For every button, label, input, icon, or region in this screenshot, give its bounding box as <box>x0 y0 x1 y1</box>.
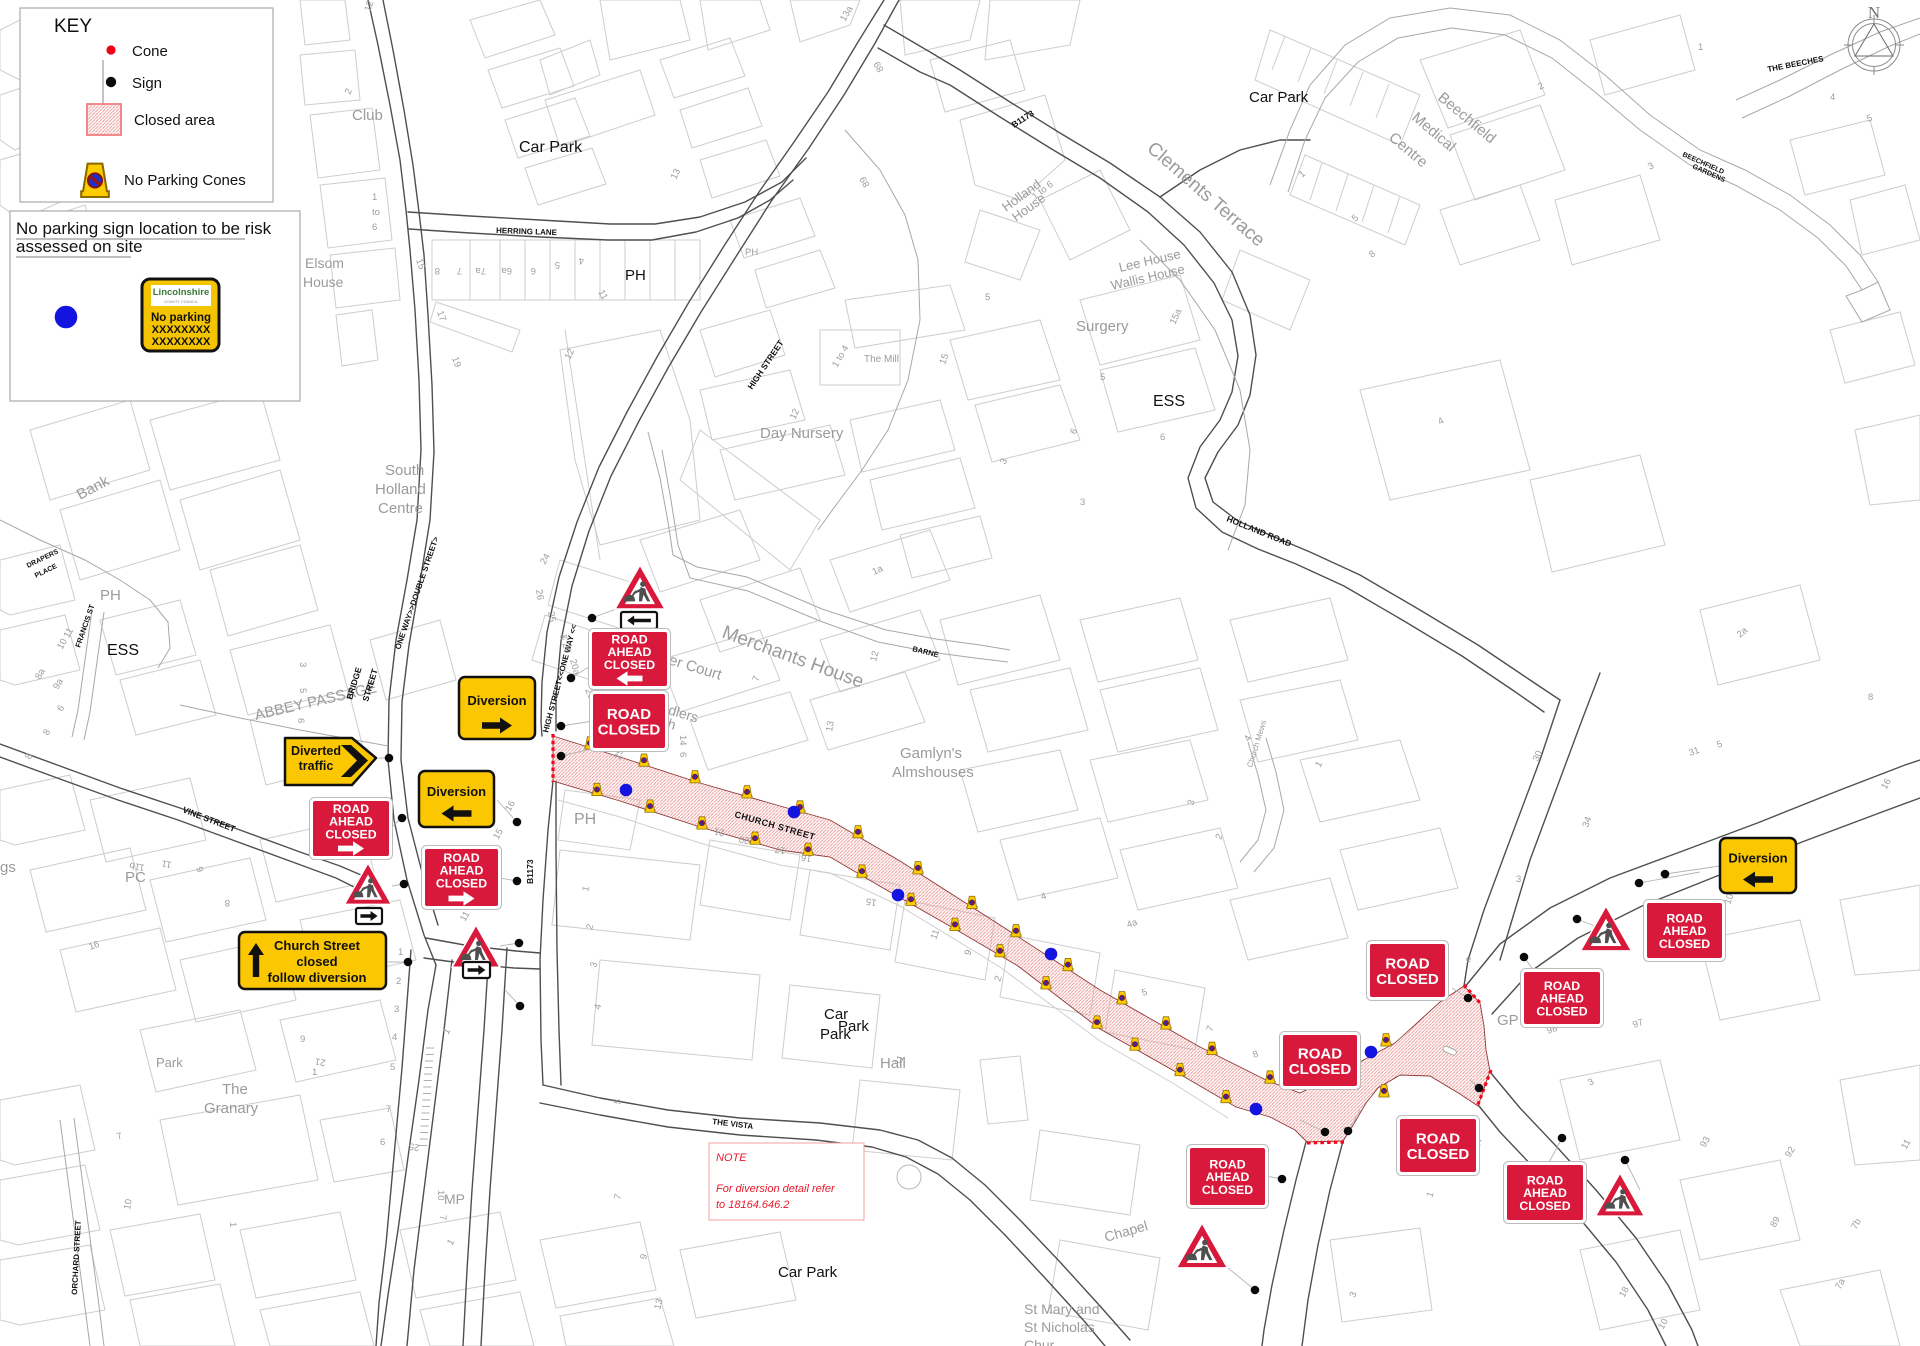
svg-text:CLOSED: CLOSED <box>1519 1199 1570 1213</box>
svg-text:CLOSED: CLOSED <box>1202 1183 1253 1197</box>
svg-text:PH: PH <box>745 247 758 258</box>
svg-text:2: 2 <box>396 976 401 987</box>
svg-text:to 18164.646.2: to 18164.646.2 <box>716 1199 789 1211</box>
svg-text:N: N <box>1868 3 1880 22</box>
svg-text:No parking sign location to be: No parking sign location to be risk <box>16 219 272 238</box>
svg-text:3: 3 <box>297 662 308 667</box>
svg-text:6a: 6a <box>501 265 512 276</box>
svg-text:PH: PH <box>100 587 121 604</box>
svg-text:25: 25 <box>408 1140 420 1153</box>
svg-text:CLOSED: CLOSED <box>325 828 376 842</box>
svg-text:20: 20 <box>738 833 750 846</box>
svg-text:8: 8 <box>225 897 230 908</box>
svg-text:CLOSED: CLOSED <box>1659 937 1710 951</box>
svg-text:Lincolnshire: Lincolnshire <box>153 287 209 298</box>
svg-text:ROAD: ROAD <box>1385 955 1429 972</box>
svg-text:8: 8 <box>1868 692 1873 703</box>
svg-text:PH: PH <box>574 811 596 828</box>
svg-text:16: 16 <box>800 851 812 864</box>
svg-text:The Mill: The Mill <box>864 354 899 365</box>
svg-text:to: to <box>372 207 380 218</box>
svg-text:7a: 7a <box>475 265 486 276</box>
svg-text:Diverted: Diverted <box>291 744 341 758</box>
svg-text:CLOSED: CLOSED <box>604 658 655 672</box>
svg-text:Diversion: Diversion <box>467 693 526 708</box>
svg-text:XXXXXXXX: XXXXXXXX <box>152 324 211 336</box>
svg-text:7: 7 <box>386 1104 391 1115</box>
svg-text:6: 6 <box>372 222 377 233</box>
svg-text:3: 3 <box>1080 497 1085 508</box>
svg-text:For diversion detail refer: For diversion detail refer <box>716 1183 836 1195</box>
svg-text:B1173: B1173 <box>525 859 535 884</box>
svg-text:5: 5 <box>297 688 308 693</box>
svg-text:4: 4 <box>392 1032 397 1043</box>
svg-text:CLOSED: CLOSED <box>1376 971 1439 988</box>
svg-text:3: 3 <box>1516 874 1521 885</box>
svg-text:1: 1 <box>398 947 403 958</box>
svg-text:7: 7 <box>437 1215 448 1220</box>
svg-text:Gamlyn's: Gamlyn's <box>900 745 962 762</box>
svg-text:Park: Park <box>838 1018 869 1035</box>
svg-text:Diversion: Diversion <box>427 784 486 799</box>
svg-text:XXXXXXXX: XXXXXXXX <box>152 336 211 348</box>
svg-text:Holland: Holland <box>375 481 426 498</box>
svg-text:Park: Park <box>156 1055 183 1070</box>
svg-text:COUNTY COUNCIL: COUNTY COUNCIL <box>164 300 198 304</box>
svg-text:assessed on site: assessed on site <box>16 237 143 256</box>
svg-text:Sign: Sign <box>132 75 162 92</box>
svg-text:9: 9 <box>300 1034 305 1045</box>
svg-text:Centre: Centre <box>378 500 423 517</box>
svg-text:Granary: Granary <box>204 1100 259 1117</box>
svg-text:1: 1 <box>372 192 377 203</box>
svg-text:Diversion: Diversion <box>1728 850 1787 865</box>
svg-text:1: 1 <box>1698 42 1703 53</box>
svg-text:1: 1 <box>227 1222 238 1227</box>
svg-text:PH: PH <box>625 267 646 284</box>
svg-text:Almshouses: Almshouses <box>892 764 974 781</box>
svg-text:gs: gs <box>0 859 16 876</box>
svg-text:Car Park: Car Park <box>778 1264 838 1281</box>
svg-text:House: House <box>303 274 344 290</box>
svg-text:7: 7 <box>457 265 462 276</box>
svg-text:CLOSED: CLOSED <box>1289 1061 1352 1078</box>
svg-text:21: 21 <box>713 825 725 838</box>
svg-text:ESS: ESS <box>107 642 139 659</box>
svg-text:3: 3 <box>394 1004 399 1015</box>
svg-text:8: 8 <box>435 265 440 276</box>
svg-text:Elsom: Elsom <box>305 255 344 271</box>
svg-text:CLOSED: CLOSED <box>598 722 661 739</box>
svg-text:follow diversion: follow diversion <box>268 970 367 985</box>
svg-text:Chur: Chur <box>1024 1337 1055 1346</box>
svg-text:CLOSED: CLOSED <box>1407 1146 1470 1163</box>
svg-text:10: 10 <box>435 1190 446 1201</box>
svg-text:5: 5 <box>1100 372 1105 383</box>
svg-text:closed: closed <box>296 954 337 969</box>
svg-text:No parking: No parking <box>151 312 211 324</box>
svg-text:e: e <box>1466 954 1471 965</box>
svg-text:GP: GP <box>1497 1012 1519 1029</box>
svg-text:6: 6 <box>1160 432 1165 443</box>
svg-text:The: The <box>222 1081 248 1098</box>
svg-text:NOTE: NOTE <box>716 1152 747 1164</box>
svg-text:6: 6 <box>531 265 536 276</box>
svg-text:4: 4 <box>579 255 584 266</box>
svg-text:13: 13 <box>824 720 837 732</box>
svg-text:26: 26 <box>533 589 546 601</box>
svg-text:14: 14 <box>677 735 688 746</box>
svg-text:Car Park: Car Park <box>519 139 583 156</box>
svg-text:CLOSED: CLOSED <box>1536 1005 1587 1019</box>
svg-text:ROAD: ROAD <box>1298 1045 1342 1062</box>
svg-text:6: 6 <box>677 752 688 757</box>
svg-text:CLOSED: CLOSED <box>436 877 487 891</box>
svg-text:5: 5 <box>985 292 990 303</box>
svg-text:MP: MP <box>444 1191 465 1207</box>
svg-text:St Nicholas: St Nicholas <box>1024 1319 1095 1335</box>
svg-text:Car Park: Car Park <box>1249 89 1309 106</box>
svg-text:5: 5 <box>555 259 560 270</box>
svg-text:21: 21 <box>314 1055 326 1068</box>
svg-text:6: 6 <box>295 718 306 723</box>
svg-text:1: 1 <box>312 1067 317 1078</box>
svg-text:Cone: Cone <box>132 43 168 60</box>
svg-text:No Parking Cones: No Parking Cones <box>124 172 246 189</box>
svg-text:25: 25 <box>545 611 558 623</box>
svg-text:Church Street: Church Street <box>274 938 361 953</box>
svg-text:KEY: KEY <box>54 16 92 37</box>
svg-text:ROAD: ROAD <box>1416 1130 1460 1147</box>
svg-text:Surgery: Surgery <box>1076 318 1129 335</box>
svg-text:Closed area: Closed area <box>134 112 216 129</box>
svg-text:ESS: ESS <box>1153 393 1185 410</box>
svg-text:South: South <box>385 462 424 479</box>
svg-text:10: 10 <box>122 1198 135 1210</box>
svg-text:6: 6 <box>380 1137 385 1148</box>
svg-text:Club: Club <box>352 107 383 124</box>
svg-text:11: 11 <box>161 857 173 870</box>
svg-text:St Mary and: St Mary and <box>1024 1301 1099 1317</box>
svg-text:Day Nursery: Day Nursery <box>760 425 844 442</box>
svg-text:15: 15 <box>865 895 877 908</box>
svg-text:17: 17 <box>774 843 786 856</box>
svg-text:5: 5 <box>390 1062 395 1073</box>
svg-text:ROAD: ROAD <box>607 706 651 723</box>
svg-text:4: 4 <box>1830 92 1835 103</box>
svg-text:traffic: traffic <box>299 759 334 773</box>
